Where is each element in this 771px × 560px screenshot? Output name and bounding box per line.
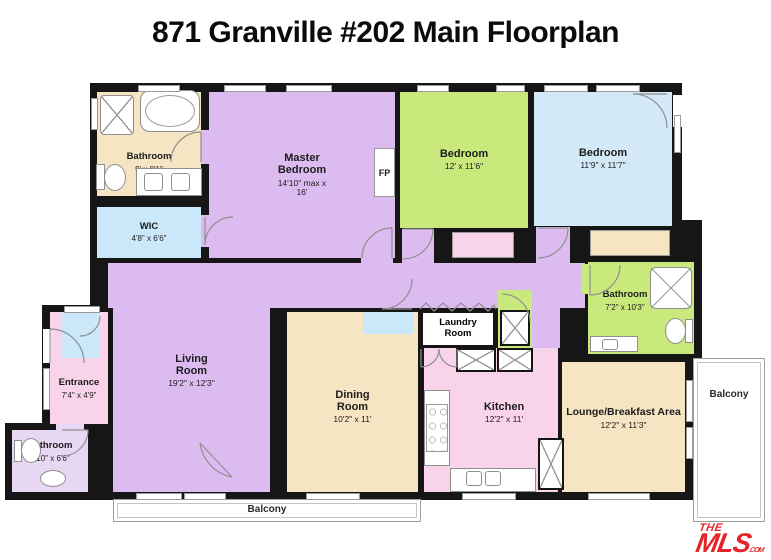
room-label: Lounge/Breakfast Area xyxy=(566,407,681,419)
window xyxy=(64,306,100,313)
balcony-right-label: Balcony xyxy=(710,389,749,400)
room-label: Kitchen xyxy=(484,401,524,413)
window xyxy=(674,115,681,153)
balcony-bottom-label: Balcony xyxy=(248,504,287,515)
sink xyxy=(602,339,618,350)
window xyxy=(686,380,693,422)
entrance-vestibule xyxy=(62,312,100,358)
hallway-kitchen-stub xyxy=(532,308,560,348)
room-label: Dining Room xyxy=(325,389,381,414)
room-dims: 10'2" x 11' xyxy=(325,415,381,425)
room-label: Living Room xyxy=(167,353,217,378)
window xyxy=(136,493,182,500)
kitchen-sink xyxy=(485,471,501,486)
room-label: Bedroom xyxy=(579,147,627,159)
toilet-bowl xyxy=(104,164,126,191)
room-master-bedroom: Master Bedroom 14'10" max x 16' xyxy=(209,92,395,258)
room-dims: 12'2" x 11' xyxy=(484,415,524,425)
room-dims: 7'4" x 4'9" xyxy=(59,391,100,400)
room-dims: 19'2" x 12'3" xyxy=(167,379,217,389)
room-bedroom-right: Bedroom 11'9" x 11'7" xyxy=(534,92,672,226)
kitchen-sink xyxy=(466,471,482,486)
room-dims: 12' x 11'6" xyxy=(445,162,483,172)
room-dims: 12'2" x 11'3" xyxy=(566,421,681,431)
toilet-tank xyxy=(685,319,693,343)
room-label: Entrance xyxy=(59,378,100,389)
dining-alcove xyxy=(363,312,413,334)
window xyxy=(544,85,588,92)
mls-logo-com: .COM xyxy=(748,546,764,553)
window xyxy=(306,493,360,500)
page-title: 871 Granville #202 Main Floorplan xyxy=(0,16,771,50)
vanity-sink xyxy=(171,173,190,191)
floorplan-page: 871 Granville #202 Main Floorplan Balcon… xyxy=(0,0,771,560)
door-opening xyxy=(536,227,570,263)
room-label: WIC xyxy=(140,222,158,233)
room-label: Bedroom xyxy=(440,148,488,160)
kitchen-cabinet xyxy=(497,348,533,372)
room-label: Bathroom xyxy=(127,152,172,163)
bathtub xyxy=(140,90,200,132)
window xyxy=(686,427,693,459)
room-dims: 4'8" x 6'6" xyxy=(132,234,167,243)
window xyxy=(496,85,525,92)
room-label: Laundry Room xyxy=(433,318,483,339)
room-label: Master Bedroom xyxy=(267,152,337,177)
door-opening xyxy=(201,130,209,164)
stove xyxy=(426,404,448,452)
room-wic: WIC 4'8" x 6'6" xyxy=(97,207,201,258)
room-living: Living Room 19'2" x 12'3" xyxy=(113,300,270,492)
laundry-closet xyxy=(500,310,530,346)
window xyxy=(462,493,516,500)
room-lounge: Lounge/Breakfast Area 12'2" x 11'3" xyxy=(562,362,685,492)
room-bedroom-center: Bedroom 12' x 11'6" xyxy=(400,92,528,228)
toilet-bowl xyxy=(665,318,686,344)
sink xyxy=(40,470,66,487)
window xyxy=(224,85,266,92)
door-opening xyxy=(43,329,51,363)
window xyxy=(286,85,332,92)
window xyxy=(596,85,640,92)
window xyxy=(43,368,50,410)
room-dims: 7'2" x 10'3" xyxy=(603,303,648,312)
fireplace: FP xyxy=(374,148,395,197)
window xyxy=(588,493,650,500)
window xyxy=(417,85,449,92)
door-opening xyxy=(56,424,84,431)
vanity-sink xyxy=(144,173,163,191)
door-opening xyxy=(581,264,589,294)
window xyxy=(91,98,98,130)
door-opening xyxy=(201,215,209,247)
balcony-bottom: Balcony xyxy=(113,499,421,522)
kitchen-cabinet xyxy=(456,348,496,372)
door-opening xyxy=(361,257,393,264)
room-laundry: Laundry Room xyxy=(420,310,496,348)
room-dining: Dining Room 10'2" x 11' xyxy=(287,312,418,492)
fireplace-label: FP xyxy=(379,168,391,178)
room-dims: 11'9" x 11'7" xyxy=(580,161,625,171)
shower xyxy=(650,267,692,309)
mls-logo: THE MLS.COM xyxy=(694,524,768,554)
closet-pink xyxy=(452,232,514,258)
window xyxy=(138,85,180,92)
closet-cream xyxy=(590,230,670,256)
kitchen-cabinet xyxy=(538,438,564,490)
toilet-bowl xyxy=(21,438,41,463)
mls-logo-text: MLS.COM xyxy=(694,532,766,554)
shower xyxy=(100,95,134,135)
door-opening xyxy=(402,229,434,263)
room-label: Bathroom xyxy=(603,290,648,301)
balcony-right: Balcony xyxy=(693,358,765,522)
room-dims: 14'10" max x 16' xyxy=(271,179,333,199)
window xyxy=(184,493,226,500)
